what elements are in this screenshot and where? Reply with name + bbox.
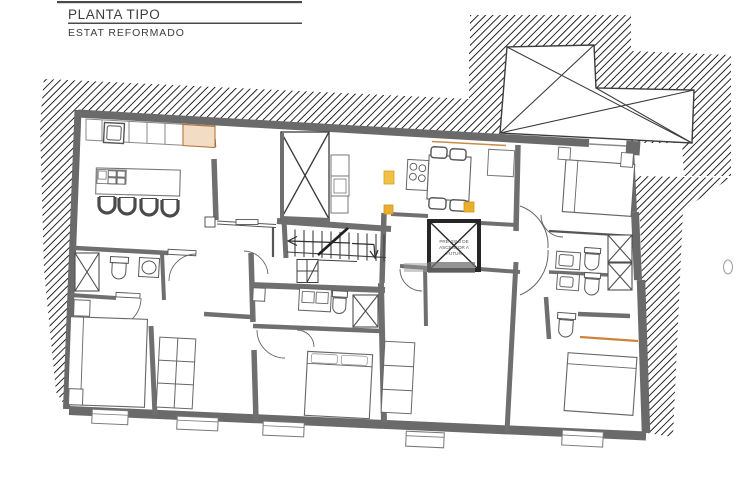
svg-text:PREVISIÓ DE: PREVISIÓ DE bbox=[439, 238, 468, 244]
svg-text:ASCENSOR A: ASCENSOR A bbox=[439, 245, 470, 250]
svg-text:FUTUR: FUTUR bbox=[446, 251, 462, 256]
svg-text:PLANTA TIPO: PLANTA TIPO bbox=[68, 7, 160, 22]
svg-text:ESTAT REFORMADO: ESTAT REFORMADO bbox=[68, 27, 185, 39]
